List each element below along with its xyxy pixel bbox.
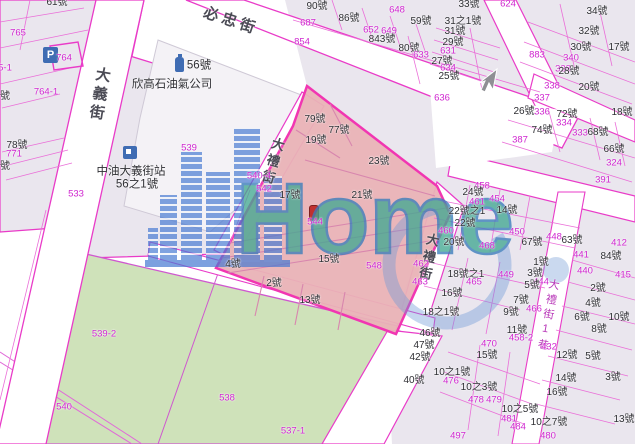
house-number-label: 31號 — [444, 27, 465, 37]
parcel-number-label: 544 — [307, 217, 323, 227]
parcel-number-label: 883 — [529, 50, 545, 60]
parcel-number-label: 765 — [10, 28, 26, 38]
house-number-label: 67號 — [521, 238, 542, 248]
parcel-number-label: 631 — [440, 46, 456, 56]
parcel-number-label: 633 — [413, 50, 429, 60]
house-number-label: 號 — [0, 162, 10, 172]
house-number-label: 16號 — [441, 289, 462, 299]
house-number-label: 號 — [0, 92, 10, 102]
map-viewport[interactable]: P Home 必忠街大義街大禮街大禮街大禮街1巷 61號7657645-1764… — [0, 0, 635, 444]
parcel-number-label: 432 — [541, 342, 557, 352]
house-number-label: 4號 — [585, 299, 601, 309]
parcel-number-label: 462 — [413, 259, 429, 269]
house-number-label: 欣高石油氣公司 — [132, 79, 213, 91]
house-number-label: 12號 — [556, 351, 577, 361]
parcel-number-label: 460 — [438, 226, 454, 236]
house-number-label: 10之3號 — [461, 383, 498, 393]
house-number-label: 20號 — [578, 83, 599, 93]
house-number-label: 14號 — [555, 374, 576, 384]
house-number-label: 13號 — [613, 415, 634, 425]
house-number-label: 79號 — [304, 115, 325, 125]
parcel-number-label: 854 — [294, 37, 310, 47]
parcel-number-label: 454 — [489, 194, 505, 204]
house-number-label: 1號 — [533, 258, 549, 268]
parcel-number-label: 533 — [68, 189, 84, 199]
house-number-label: 63號 — [561, 236, 582, 246]
house-number-label: 10號 — [608, 313, 629, 323]
house-number-label: 4號 — [225, 260, 241, 270]
parcel-number-label: 497 — [450, 431, 466, 441]
parcel-number-label: 5-1 — [0, 63, 12, 73]
house-number-label: 15號 — [318, 255, 339, 265]
house-number-label: 2號 — [266, 279, 282, 289]
parcel-number-label: 470 — [481, 339, 497, 349]
house-number-label: 843號 — [369, 35, 396, 45]
parcel-number-label: 476 — [443, 376, 459, 386]
house-number-label: 18之1號 — [423, 308, 460, 318]
house-number-label: 23號 — [368, 157, 389, 167]
house-number-label: 14號 — [496, 206, 517, 216]
parcel-number-label: 441 — [573, 250, 589, 260]
parcel-number-label: 466 — [526, 304, 542, 314]
house-number-label: 74號 — [531, 126, 552, 136]
parcel-number-label: 636 — [434, 93, 450, 103]
parcel-number-label: 412 — [611, 238, 627, 248]
house-number-label: 33號 — [458, 0, 479, 10]
parcel-number-label: 771 — [6, 149, 22, 159]
parcel-number-label: 624 — [500, 0, 516, 9]
parcel-number-label: 458-2 — [509, 333, 533, 343]
parcel-number-label: 440 — [577, 266, 593, 276]
parcel-number-label: 687 — [300, 18, 316, 28]
house-number-label: 40號 — [403, 376, 424, 386]
house-number-label: 22號 — [454, 219, 475, 229]
house-number-label: 17號 — [608, 43, 629, 53]
house-number-label: 56之1號 — [116, 179, 158, 191]
house-number-label: 5號 — [585, 352, 601, 362]
parcel-number-label: 415 — [615, 270, 631, 280]
house-number-label: 86號 — [338, 14, 359, 24]
house-number-label: 5號 — [524, 281, 540, 291]
parcel-number-label: 764-1 — [34, 87, 58, 97]
parcel-number-label: 391 — [595, 175, 611, 185]
house-number-label: 84號 — [600, 252, 621, 262]
parcel-number-label: 479 — [486, 395, 502, 405]
house-number-label: 2號 — [590, 284, 606, 294]
house-number-label: 15號 — [476, 351, 497, 361]
house-number-label: 34號 — [586, 7, 607, 17]
house-number-label: 3號 — [605, 373, 621, 383]
parcel-number-label: 448 — [546, 232, 562, 242]
house-number-label: 8號 — [591, 325, 607, 335]
house-number-label: 25號 — [438, 72, 459, 82]
house-number-label: 59號 — [410, 17, 431, 27]
parcel-number-label: 484 — [510, 422, 526, 432]
parcel-number-label: 537-1 — [281, 426, 305, 436]
parcel-number-label: 539-2 — [92, 329, 116, 339]
parcel-number-label: 465 — [466, 277, 482, 287]
parcel-number-label: 540-4 — [247, 171, 271, 181]
parcel-number-label: 334 — [556, 118, 572, 128]
parcel-number-label: 463 — [412, 277, 428, 287]
parcel-number-label: 324 — [606, 158, 622, 168]
house-number-label: 13號 — [299, 296, 320, 306]
house-number-label: 26號 — [513, 107, 534, 117]
house-number-label: 10之7號 — [531, 418, 568, 428]
house-number-label: 66號 — [603, 145, 624, 155]
house-number-label: 56號 — [187, 60, 211, 72]
house-number-label: 19號 — [305, 136, 326, 146]
house-number-label: 47號 — [413, 341, 434, 351]
house-number-label: 17號 — [279, 191, 300, 201]
house-number-label: 18號 — [611, 108, 632, 118]
house-number-label: 61號 — [46, 0, 67, 8]
house-number-label: 42號 — [409, 353, 430, 363]
house-number-label: 9號 — [503, 308, 519, 318]
parcel-number-label: 542 — [256, 184, 272, 194]
parcel-number-label: 539 — [181, 143, 197, 153]
house-number-label: 77號 — [328, 126, 349, 136]
parcel-number-label: 340 — [563, 53, 579, 63]
house-number-label: 68號 — [587, 128, 608, 138]
house-number-label: 90號 — [306, 2, 327, 12]
house-number-label: 46號 — [419, 329, 440, 339]
parcel-number-label: 468 — [479, 241, 495, 251]
house-number-label: 16號 — [546, 388, 567, 398]
parcel-number-label: 538 — [219, 393, 235, 403]
parcel-number-label: 338 — [544, 81, 560, 91]
house-number-label: 20號 — [443, 238, 464, 248]
parcel-number-label: 336 — [534, 107, 550, 117]
parcel-number-label: 480 — [540, 431, 556, 441]
house-number-label: 28號 — [558, 67, 579, 77]
parcel-number-label: 387 — [512, 135, 528, 145]
parcel-number-label: 648 — [389, 5, 405, 15]
house-number-label: 21號 — [351, 191, 372, 201]
parcel-number-label: 333 — [572, 128, 588, 138]
house-number-label: 中油大義街站 — [97, 166, 166, 178]
house-number-label: 22號之1 — [449, 207, 486, 217]
house-number-label: 6號 — [574, 313, 590, 323]
parcel-number-label: 540 — [56, 402, 72, 412]
parcel-number-label: 449 — [498, 270, 514, 280]
parcel-number-label: 548 — [366, 261, 382, 271]
map-labels-layer: 61號7657645-1764-1號78號771號53356號欣高石油氣公司53… — [0, 0, 635, 444]
parcel-number-label: 764 — [56, 53, 72, 63]
parcel-number-label: 450 — [509, 227, 525, 237]
house-number-label: 32號 — [578, 27, 599, 37]
parcel-number-label: 337 — [534, 93, 550, 103]
parcel-number-label: 478 — [468, 395, 484, 405]
